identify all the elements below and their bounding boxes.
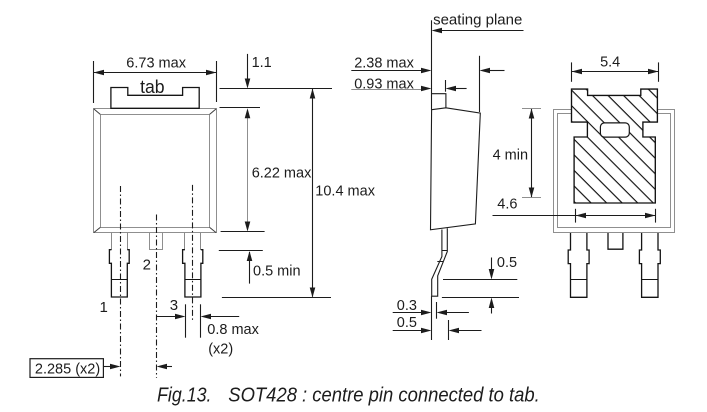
svg-text:4.6: 4.6 (497, 196, 517, 212)
svg-text:1: 1 (100, 299, 108, 316)
svg-text:1.1: 1.1 (252, 55, 272, 71)
svg-text:0.5: 0.5 (497, 255, 517, 271)
svg-text:0.5: 0.5 (397, 315, 417, 331)
svg-text:(x2): (x2) (208, 342, 233, 358)
svg-text:Fig.13.: Fig.13. (157, 385, 212, 407)
svg-text:3: 3 (170, 297, 178, 314)
svg-text:4 min: 4 min (493, 147, 528, 163)
svg-text:SOT428 : centre pin connected: SOT428 : centre pin connected to tab. (228, 385, 540, 407)
svg-text:6.73 max: 6.73 max (126, 56, 186, 72)
svg-text:0.5 min: 0.5 min (253, 263, 301, 279)
svg-text:10.4 max: 10.4 max (315, 184, 375, 200)
svg-text:0.3: 0.3 (397, 298, 417, 314)
svg-text:seating plane: seating plane (433, 11, 522, 28)
svg-text:0.8 max: 0.8 max (207, 322, 259, 338)
svg-text:2.285 (x2): 2.285 (x2) (35, 361, 100, 377)
svg-text:5.4: 5.4 (600, 54, 620, 70)
svg-text:2.38 max: 2.38 max (354, 56, 414, 72)
svg-text:2: 2 (143, 257, 151, 274)
svg-text:6.22 max: 6.22 max (252, 166, 312, 182)
svg-text:tab: tab (140, 76, 165, 97)
